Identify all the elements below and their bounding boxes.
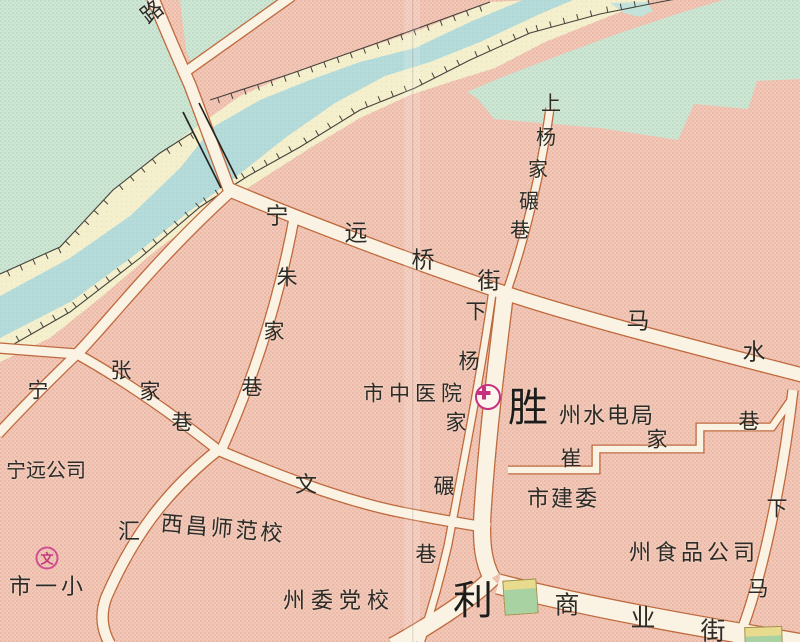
street-cuijia-2: 巷: [739, 412, 760, 433]
street-shangye-2: 街: [700, 619, 725, 642]
street-nyqj-3: 街: [478, 271, 501, 294]
map-canvas: 路 上 杨 家 碾 巷 宁 远 桥 街 朱 家 巷 张 家 巷 宁 下 杨 家 …: [0, 0, 800, 642]
street-shengli-0: 胜: [508, 388, 548, 428]
street-shangyang-3: 碾: [519, 191, 539, 211]
poi-ningyuan-company-label: 宁远公司: [6, 460, 86, 480]
street-nyqj-1: 远: [345, 223, 368, 246]
street-nyqj-2: 桥: [412, 250, 435, 273]
street-shangye-0: 商: [554, 593, 579, 618]
poi-construction-label: 市建委: [527, 489, 599, 511]
street-zhangjia-1: 家: [140, 382, 161, 403]
street-zhujia-0: 朱: [277, 268, 298, 289]
street-shengli-1: 利: [453, 581, 493, 621]
street-xiayang-0: 下: [466, 302, 487, 323]
street-xiayang-1: 杨: [459, 352, 480, 373]
street-xiayang-2: 家: [446, 413, 467, 434]
street-shangyang-2: 家: [528, 159, 548, 179]
street-xiayang-4: 巷: [416, 545, 437, 566]
street-xia: 下: [767, 499, 788, 520]
street-zhangjia-2: 巷: [172, 413, 193, 434]
poi-first-primary-label: 市一小: [9, 577, 87, 599]
street-zhujia-1: 家: [264, 322, 285, 343]
poi-normal-school-label: 西昌师范校: [160, 514, 286, 547]
school-glyph: 文: [40, 549, 53, 568]
street-mashui-1: 水: [743, 342, 766, 365]
street-wenhui-1: 汇: [118, 522, 140, 544]
school-wen-icon: 文: [36, 547, 59, 570]
cross-glyph: [477, 386, 491, 400]
labels-layer: 路 上 杨 家 碾 巷 宁 远 桥 街 朱 家 巷 张 家 巷 宁 下 杨 家 …: [0, 0, 800, 642]
street-shangyang-1: 杨: [536, 127, 556, 147]
street-cuijia-1: 家: [647, 430, 668, 451]
street-cuijia-0: 崔: [561, 449, 582, 470]
street-shangye-1: 业: [630, 606, 655, 631]
street-zhujia-2: 巷: [242, 378, 263, 399]
poi-hospital-label: 市中医院: [363, 384, 467, 405]
street-shangyang-0: 上: [541, 93, 561, 113]
poi-party-school-label: 州委党校: [283, 591, 395, 613]
poi-food-company-label: 州食品公司: [629, 543, 759, 565]
street-nyqj-0: 宁: [266, 206, 289, 229]
street-zhangjia-0: 张: [111, 361, 132, 382]
street-shangyang-4: 巷: [510, 220, 530, 240]
street-ning: 宁: [28, 381, 49, 402]
street-xiayang-3: 碾: [434, 477, 455, 498]
hospital-cross-icon: [475, 384, 501, 410]
street-ma: 马: [748, 579, 769, 600]
street-wenhui-0: 文: [295, 475, 317, 497]
street-mashui-0: 马: [627, 311, 650, 334]
street-lu: 路: [138, 0, 169, 28]
poi-water-power-label: 州水电局: [559, 406, 655, 428]
